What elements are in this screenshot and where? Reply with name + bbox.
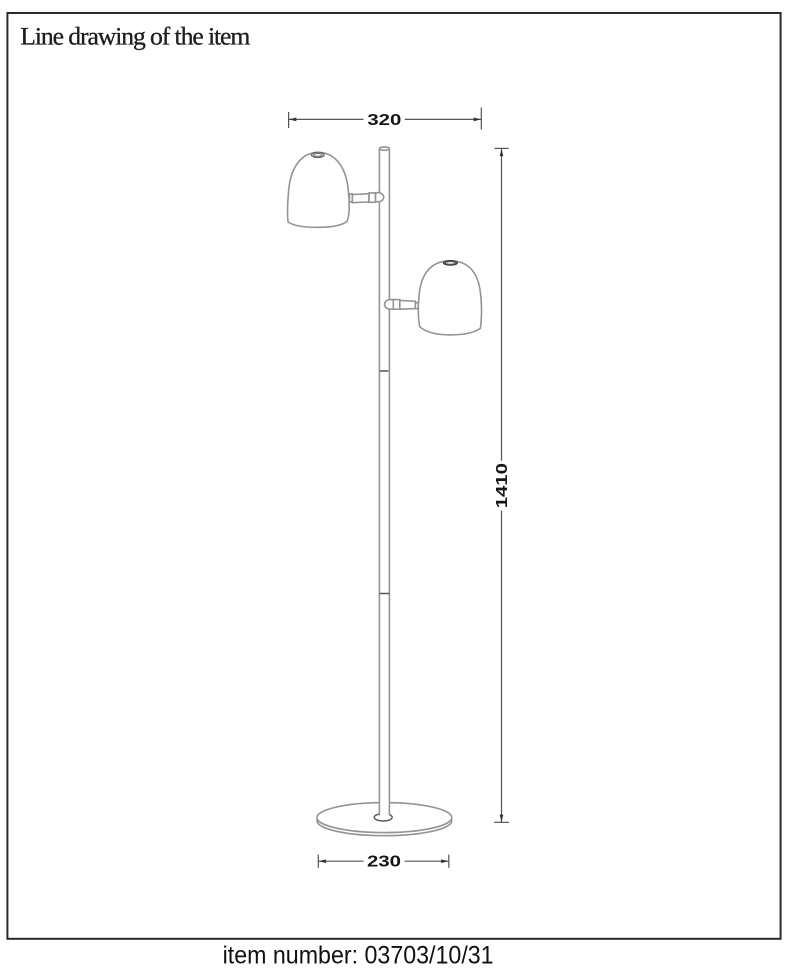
svg-text:230: 230	[367, 853, 401, 870]
svg-text:320: 320	[367, 112, 401, 129]
svg-text:1410: 1410	[493, 463, 510, 508]
svg-text:Line drawing of the item: Line drawing of the item	[20, 22, 250, 51]
svg-text:item number: 03703/10/31: item number: 03703/10/31	[223, 942, 494, 970]
